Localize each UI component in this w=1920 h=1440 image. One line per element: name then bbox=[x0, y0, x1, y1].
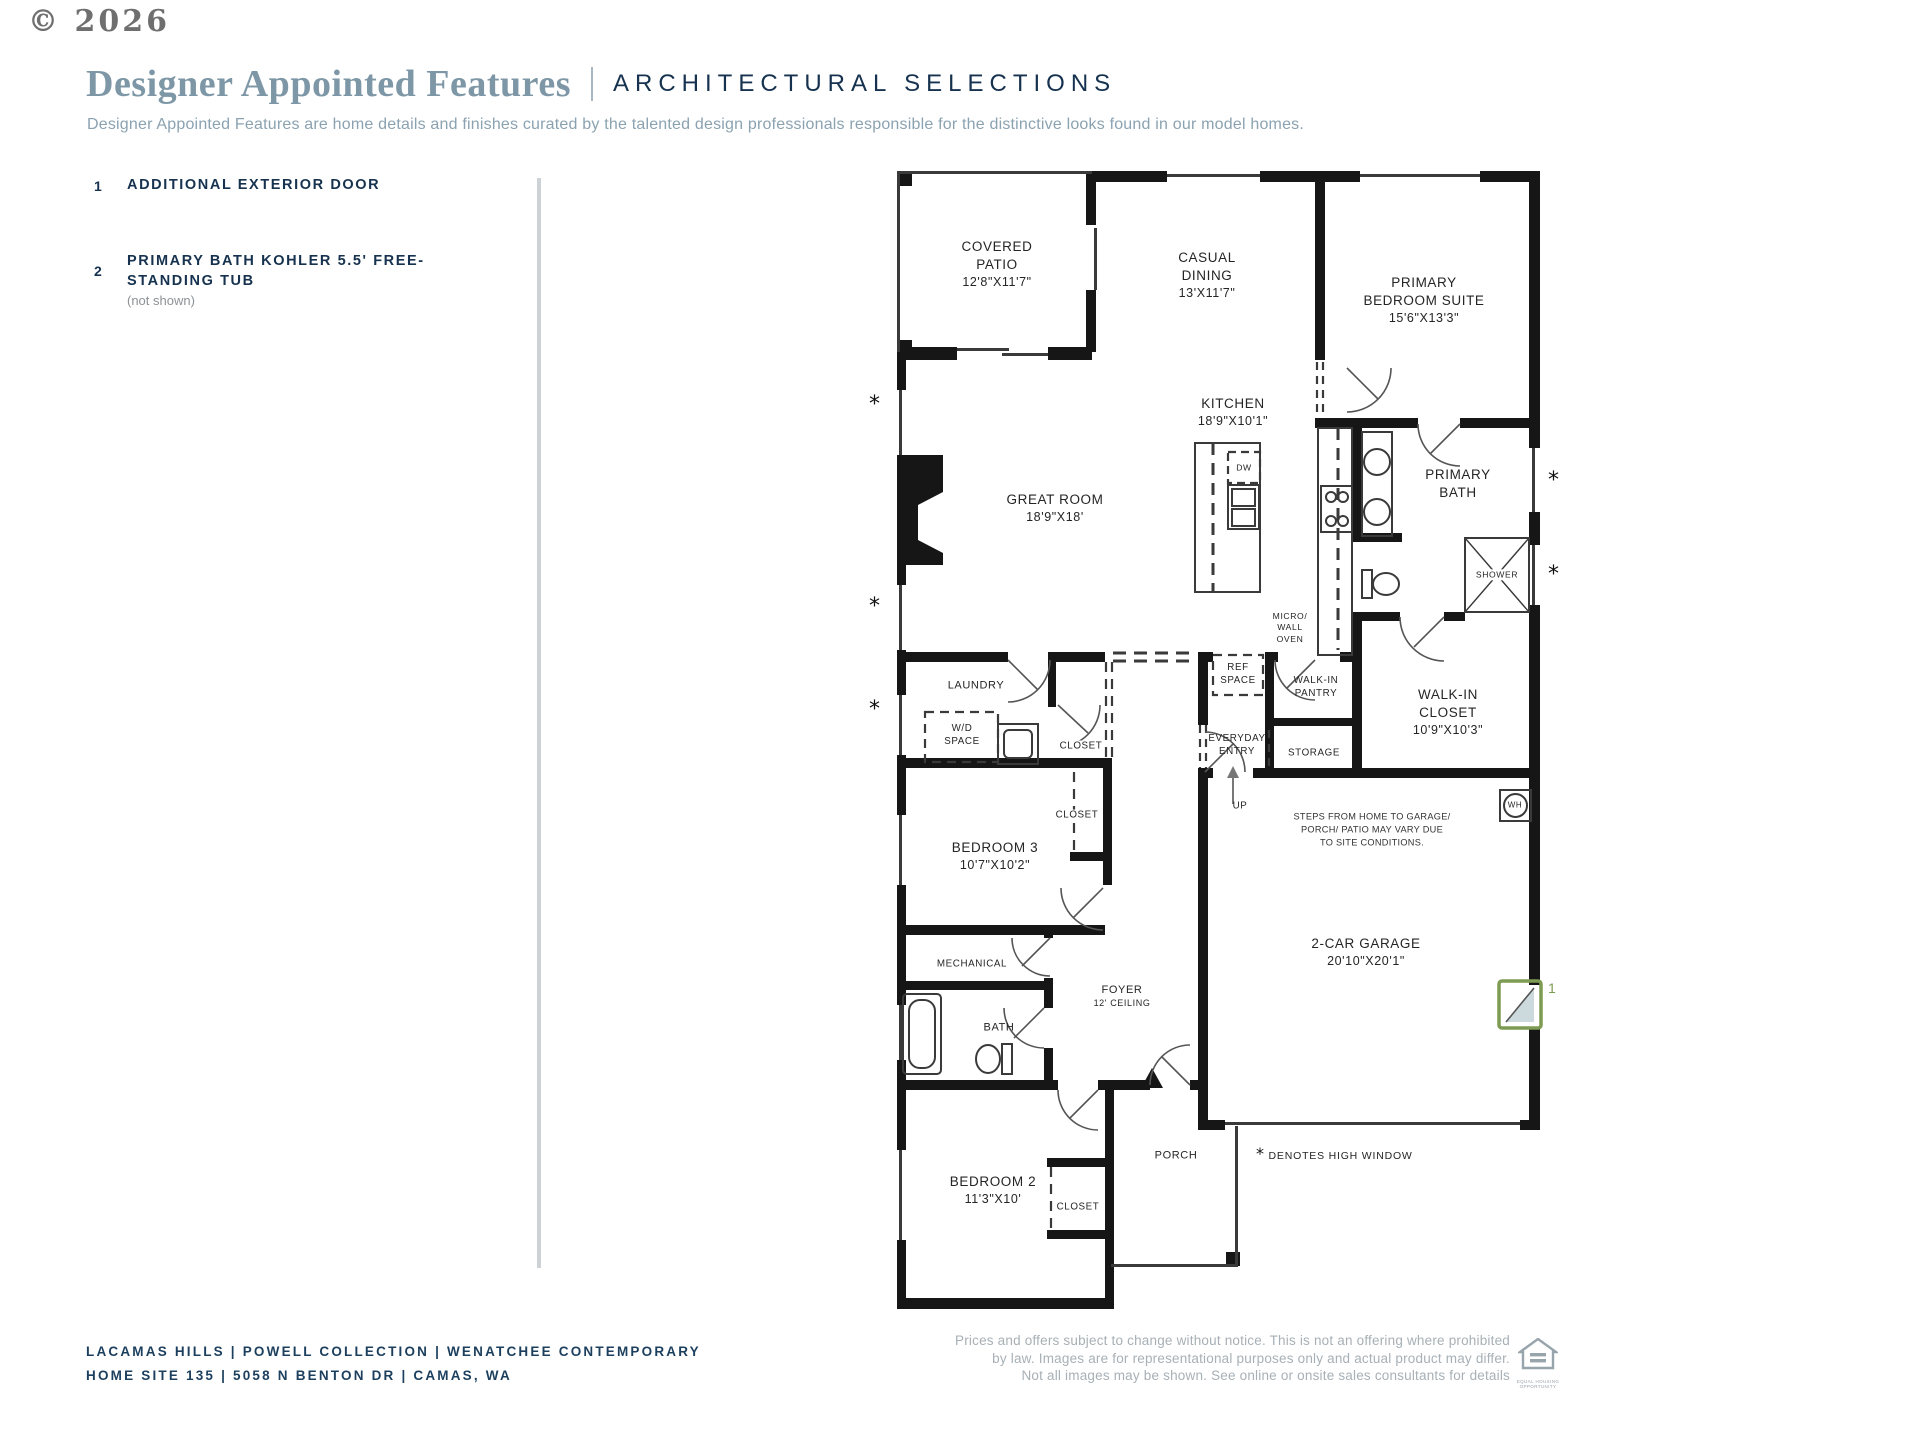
label-water-heater: WH bbox=[1508, 801, 1523, 812]
label-shower: SHOWER bbox=[1474, 569, 1520, 580]
label-line: REF bbox=[1220, 662, 1256, 675]
footer-line1: LACAMAS HILLS | POWELL COLLECTION | WENA… bbox=[86, 1340, 701, 1364]
label-line: 15'6"X13'3" bbox=[1363, 310, 1484, 327]
high-window-marker: * bbox=[869, 392, 880, 417]
equal-housing-logo: EQUAL HOUSING OPPORTUNITY bbox=[1516, 1338, 1560, 1389]
label-line: W/D bbox=[944, 723, 980, 736]
room-label-porch: PORCH bbox=[1155, 1149, 1198, 1164]
label-walk-in-pantry: WALK-IN PANTRY bbox=[1294, 675, 1339, 701]
label-line: 12' CEILING bbox=[1094, 997, 1151, 1009]
footer-line2: HOME SITE 135 | 5058 N BENTON DR | CAMAS… bbox=[86, 1364, 701, 1388]
room-label-great-room: GREAT ROOM 18'9"X18' bbox=[1006, 491, 1103, 525]
disclaimer-line: Prices and offers subject to change with… bbox=[955, 1332, 1510, 1350]
label-line: 18'9"X10'1" bbox=[1198, 413, 1268, 430]
label-micro-wall-oven: MICRO/ WALL OVEN bbox=[1273, 611, 1308, 645]
label-line: KITCHEN bbox=[1198, 395, 1268, 413]
label-line: PORCH/ PATIO MAY VARY DUE bbox=[1293, 824, 1450, 837]
room-label-foyer: FOYER 12' CEILING bbox=[1094, 983, 1151, 1009]
label-line: 11'3"X10' bbox=[950, 1191, 1036, 1208]
label-line: EVERYDAY bbox=[1208, 733, 1265, 746]
label-line: 2-CAR GARAGE bbox=[1311, 935, 1420, 953]
room-label-primary-suite: PRIMARY BEDROOM SUITE 15'6"X13'3" bbox=[1363, 274, 1484, 326]
room-label-primary-bath: PRIMARY BATH bbox=[1425, 466, 1490, 502]
label-line: 12'8"X11'7" bbox=[962, 274, 1033, 291]
label-line: BATH bbox=[1425, 484, 1490, 502]
label-line: STEPS FROM HOME TO GARAGE/ bbox=[1293, 811, 1450, 824]
high-window-marker: * bbox=[869, 594, 880, 619]
label-line: PANTRY bbox=[1294, 688, 1339, 701]
label-line: CASUAL bbox=[1178, 249, 1236, 267]
room-label-bedroom3: BEDROOM 3 10'7"X10'2" bbox=[952, 839, 1038, 873]
high-window-legend: * DENOTES HIGH WINDOW bbox=[1256, 1144, 1413, 1163]
label-line: SPACE bbox=[1220, 675, 1256, 688]
disclaimer-line: Not all images may be shown. See online … bbox=[955, 1367, 1510, 1385]
label-line: PATIO bbox=[962, 256, 1033, 274]
feature-1-door-highlight bbox=[1499, 981, 1541, 1028]
label-line: PRIMARY bbox=[1363, 274, 1484, 292]
room-label-walk-in-closet: WALK-IN CLOSET 10'9"X10'3" bbox=[1413, 686, 1483, 738]
feature-1-callout: 1 bbox=[1548, 980, 1556, 996]
label-line: MICRO/ bbox=[1273, 611, 1308, 622]
equal-housing-house-icon bbox=[1518, 1338, 1558, 1374]
stairs-up-arrow bbox=[1227, 766, 1239, 804]
label-line: WALK-IN bbox=[1294, 675, 1339, 688]
label-line: ENTRY bbox=[1208, 746, 1265, 759]
label-line: 18'9"X18' bbox=[1006, 509, 1103, 526]
label-wd-space: W/D SPACE bbox=[944, 723, 980, 749]
label-line: 13'X11'7" bbox=[1178, 285, 1236, 302]
label-dishwasher: DW bbox=[1236, 462, 1252, 473]
label-line: BEDROOM 2 bbox=[950, 1173, 1036, 1191]
room-label-covered-patio: COVERED PATIO 12'8"X11'7" bbox=[962, 238, 1033, 290]
room-label-casual-dining: CASUAL DINING 13'X11'7" bbox=[1178, 249, 1236, 301]
label-line: WALK-IN bbox=[1413, 686, 1483, 704]
room-label-bath: BATH bbox=[984, 1021, 1015, 1036]
label-line: 10'9"X10'3" bbox=[1413, 722, 1483, 739]
label-everyday-entry: EVERYDAY ENTRY bbox=[1208, 733, 1265, 759]
label-up: UP bbox=[1233, 801, 1248, 814]
label-line: BEDROOM 3 bbox=[952, 839, 1038, 857]
footer-project-info: LACAMAS HILLS | POWELL COLLECTION | WENA… bbox=[86, 1340, 701, 1388]
room-label-garage: 2-CAR GARAGE 20'10"X20'1" bbox=[1311, 935, 1420, 969]
label-storage: STORAGE bbox=[1288, 748, 1340, 761]
equal-housing-caption: EQUAL HOUSING OPPORTUNITY bbox=[1516, 1379, 1560, 1389]
footer-disclaimer: Prices and offers subject to change with… bbox=[955, 1332, 1510, 1385]
label-mechanical: MECHANICAL bbox=[937, 959, 1007, 972]
label-line: GREAT ROOM bbox=[1006, 491, 1103, 509]
label-ref-space: REF SPACE bbox=[1220, 662, 1256, 688]
label-closet-hall: CLOSET bbox=[1058, 741, 1105, 754]
label-line: WALL bbox=[1273, 622, 1308, 633]
label-line: CLOSET bbox=[1413, 704, 1483, 722]
label-closet-bedroom3: CLOSET bbox=[1054, 810, 1101, 823]
label-line: TO SITE CONDITIONS. bbox=[1293, 836, 1450, 849]
high-window-marker: * bbox=[869, 697, 880, 722]
label-steps-note: STEPS FROM HOME TO GARAGE/ PORCH/ PATIO … bbox=[1293, 811, 1450, 850]
high-window-marker: * bbox=[1548, 562, 1559, 587]
label-line: 10'7"X10'2" bbox=[952, 857, 1038, 874]
room-label-kitchen: KITCHEN 18'9"X10'1" bbox=[1198, 395, 1268, 429]
label-line: PRIMARY bbox=[1425, 466, 1490, 484]
floor-plan-drawing bbox=[0, 0, 1920, 1440]
label-line: COVERED bbox=[962, 238, 1033, 256]
label-line: OVEN bbox=[1273, 634, 1308, 645]
room-label-bedroom2: BEDROOM 2 11'3"X10' bbox=[950, 1173, 1036, 1207]
legend-text: DENOTES HIGH WINDOW bbox=[1269, 1150, 1413, 1162]
disclaimer-line: by law. Images are for representational … bbox=[955, 1350, 1510, 1368]
label-line: DINING bbox=[1178, 267, 1236, 285]
dashed-openings bbox=[925, 362, 1338, 1230]
label-line: BEDROOM SUITE bbox=[1363, 292, 1484, 310]
high-window-marker: * bbox=[1548, 468, 1559, 493]
room-label-laundry: LAUNDRY bbox=[948, 679, 1005, 694]
high-window-marker: * bbox=[1256, 1144, 1265, 1163]
label-line: FOYER bbox=[1094, 983, 1151, 998]
label-closet-bedroom2: CLOSET bbox=[1055, 1202, 1102, 1215]
label-line: 20'10"X20'1" bbox=[1311, 953, 1420, 970]
label-line: SPACE bbox=[944, 736, 980, 749]
